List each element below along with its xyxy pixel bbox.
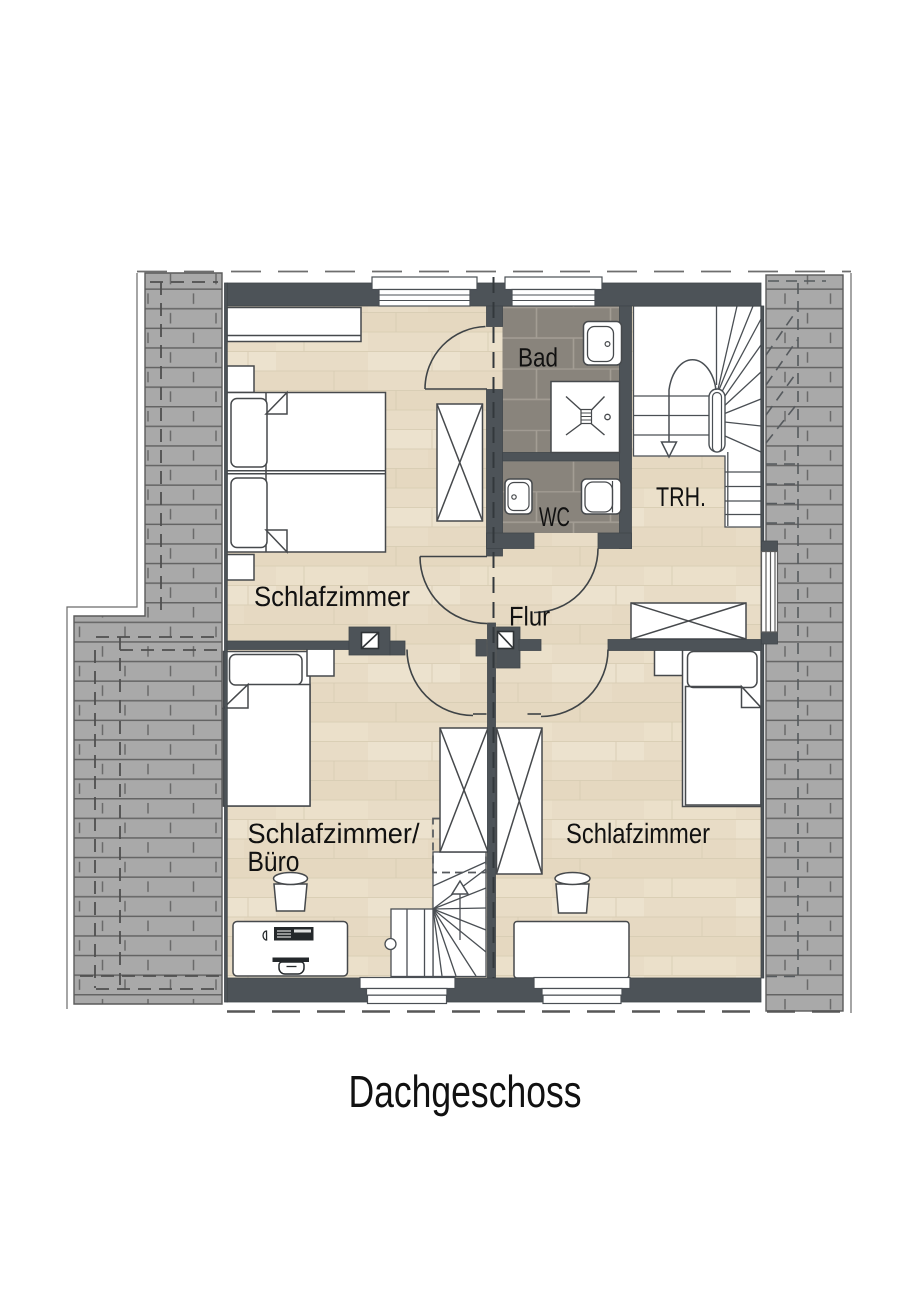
svg-text:Schlafzimmer: Schlafzimmer [254, 581, 410, 612]
svg-text:WC: WC [539, 502, 570, 532]
svg-text:Dachgeschoss: Dachgeschoss [349, 1066, 582, 1117]
svg-text:Büro: Büro [248, 846, 300, 877]
svg-text:Schlafzimmer/: Schlafzimmer/ [248, 818, 420, 849]
svg-text:Bad: Bad [518, 343, 558, 373]
svg-text:TRH.: TRH. [656, 482, 706, 512]
svg-text:Flur: Flur [509, 602, 550, 632]
svg-text:Schlafzimmer: Schlafzimmer [566, 818, 710, 849]
